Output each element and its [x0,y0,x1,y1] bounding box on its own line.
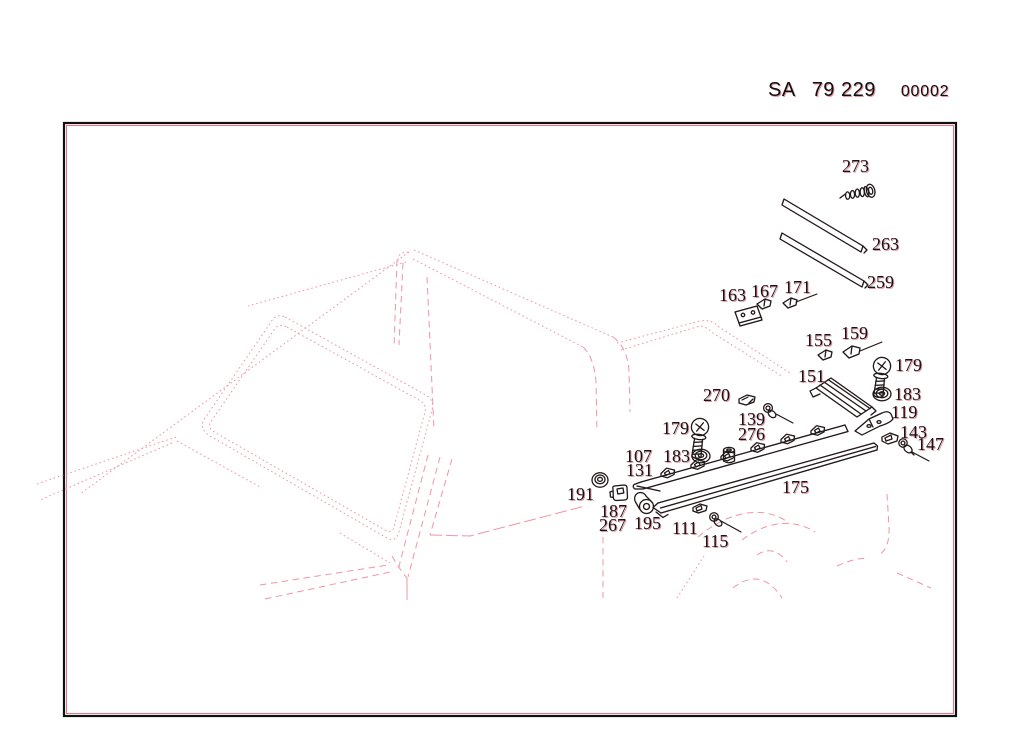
part-155-clip [818,350,832,360]
roof-front-edge-inner [248,262,406,306]
part-label-3-163: 163 [719,286,746,304]
side-window-outer [202,316,432,540]
part-163-plate [735,306,762,326]
diagram-frame [64,123,956,716]
leader-139 [776,414,793,423]
part-label-13-147: 147 [917,435,944,453]
part-111-clip [693,504,707,513]
arch-inner-1 [757,551,787,562]
part-label-8-179: 179 [895,356,922,374]
door-gap-3 [430,459,452,535]
diagram-frame-ghost [67,126,954,714]
roof-right-edge-inner [621,326,783,377]
rocker-right [430,506,585,536]
window-corner-tail [392,556,407,578]
parts-catalog-page: SA 79 229 00002 [0,0,1024,743]
part-263-strip [782,199,867,253]
roof-rear-slope-inner [413,259,583,347]
part-label-4-167: 167 [751,282,778,300]
part-label-1-263: 263 [872,235,899,253]
roof-corner [398,252,409,260]
leader-159 [860,342,882,351]
part-273-screw [839,183,877,204]
rear-edge [879,494,889,555]
cowl-line-1 [37,437,176,484]
part-191-grommet [592,473,608,487]
part-115-bolt [710,513,724,528]
part-label-6-155: 155 [805,331,832,349]
part-139-bolt [764,404,778,420]
part-label-17-179: 179 [662,419,689,437]
part-label-5-171: 171 [784,278,811,296]
part-159-clip [843,346,860,358]
part-183-grommet-right [873,387,891,401]
part-label-21-175: 175 [782,478,809,496]
part-label-0-273: 273 [842,157,869,175]
arch-inner-2 [733,579,782,598]
diagram-canvas [0,0,1024,743]
part-label-10-183: 183 [894,385,921,403]
part-label-11-119: 119 [891,403,917,421]
door-crease [340,533,390,563]
part-label-9-151: 151 [798,367,825,385]
part-270-clip [739,395,755,405]
wheel-arch-rear [837,558,869,566]
part-label-14-270: 270 [703,386,730,404]
pillar-line-3 [427,277,434,430]
roof-right-edge [617,321,790,373]
part-label-25-195: 195 [634,514,661,532]
rocker-line-2 [265,572,390,599]
door-gap-1 [398,455,428,570]
quarter-crease [677,556,704,598]
part-label-26-111: 111 [672,519,698,537]
pillar-line-2 [399,263,403,345]
rear-lower-line [897,573,931,588]
part-143-clip [882,433,898,444]
part-label-27-115: 115 [702,532,728,550]
cowl-line-2 [40,443,172,500]
rocker-line-1 [260,565,388,585]
side-window-inner [210,326,426,532]
part-label-2-259: 259 [867,273,894,291]
c-pillar-outer [613,337,630,412]
part-label-18-183: 183 [663,447,690,465]
pillar-line-1 [394,260,397,348]
part-label-16-276: 276 [738,425,765,443]
roof-rear-slope-outer [414,250,613,337]
part-195-cylinder [635,492,654,513]
part-187-block [610,485,628,501]
c-pillar-inner [583,347,597,430]
part-171-clip [783,298,797,308]
part-label-7-159: 159 [841,324,868,342]
part-label-24-267: 267 [599,516,626,534]
part-label-22-191: 191 [567,485,594,503]
wheel-arch [742,523,815,540]
sill-line [177,441,262,488]
part-label-20-131: 131 [626,461,653,479]
